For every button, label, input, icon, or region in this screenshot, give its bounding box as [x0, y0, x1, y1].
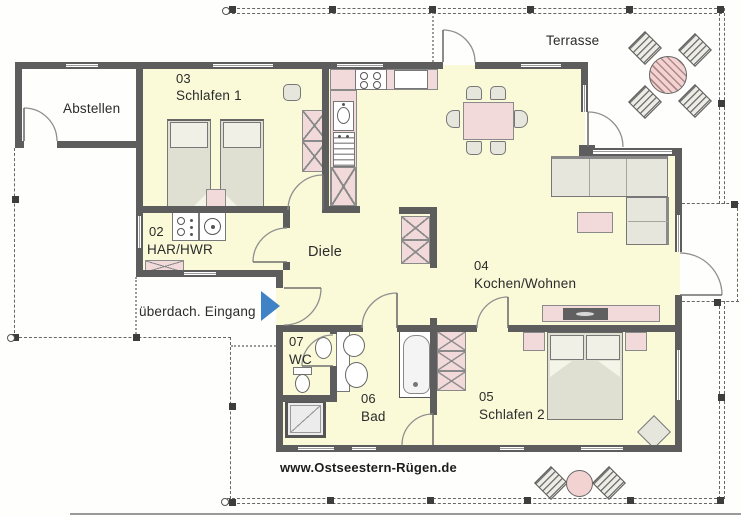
bad-sink-icon — [343, 334, 365, 357]
shower-icon — [285, 400, 326, 438]
boundary-post — [229, 403, 236, 410]
dining-chair — [490, 86, 506, 100]
boundary-post — [717, 6, 724, 13]
wall-bad-north-b — [397, 325, 477, 332]
knob — [346, 135, 349, 138]
wall-abstellen-west — [15, 62, 22, 148]
window-har-west — [136, 216, 143, 248]
boundary-post — [133, 334, 140, 341]
nightstand — [523, 332, 545, 351]
wall-wc-south — [283, 395, 337, 402]
wall-schlafen1-south — [136, 206, 288, 213]
laundry-sink-icon — [172, 212, 199, 241]
boundary-post — [527, 6, 534, 13]
door-arc-abstellen — [24, 108, 57, 141]
shower-tray — [290, 405, 321, 433]
wc-sink-icon — [315, 337, 332, 359]
window-bad-south2 — [352, 445, 376, 452]
boundary-post — [229, 499, 236, 506]
wall-har-east-a — [283, 206, 290, 228]
label-diele: Diele — [308, 244, 342, 260]
boundary-post — [427, 497, 434, 504]
diele-closet — [401, 240, 430, 264]
boundary-entry-vertical — [230, 337, 231, 499]
wall-schlafen1-kitchen — [322, 62, 329, 213]
entry-arrow-icon — [261, 291, 280, 321]
stool — [283, 84, 301, 101]
boundary-post — [329, 6, 336, 13]
dotted-entry-connector — [231, 345, 276, 347]
pillow — [550, 335, 584, 360]
nightstand — [625, 332, 647, 351]
window-har-south — [184, 270, 216, 277]
stove-icon — [355, 69, 387, 90]
door-arc-terrace-north — [443, 30, 475, 62]
room-number-wc: 07 — [289, 334, 304, 349]
pillow — [586, 335, 620, 360]
kitchen-cupboard — [331, 167, 356, 206]
website-label: www.Ostseestern-Rügen.de — [280, 460, 457, 475]
wall-schlafen2-north — [508, 325, 675, 332]
washer-center — [211, 225, 215, 229]
door-arc-terrace-east — [680, 253, 722, 295]
room-name-schlafen2: Schlafen 2 — [479, 407, 545, 422]
sink-basin — [337, 107, 350, 124]
room-number-schlafen1: 03 — [176, 71, 191, 86]
wall-entry-west-a — [276, 270, 283, 288]
boundary-post — [12, 196, 19, 203]
boundary-post — [717, 497, 724, 504]
window-kitchen — [337, 62, 383, 69]
pillow — [170, 122, 208, 148]
burner-icon — [373, 81, 381, 89]
washer-icon — [199, 212, 226, 241]
sofa-seam — [589, 159, 590, 196]
kitchen-worktop — [394, 70, 428, 89]
knob — [338, 135, 341, 138]
room-name-wc: WC — [289, 352, 312, 367]
wall-bad-east — [430, 318, 437, 415]
boundary-top — [227, 8, 722, 14]
boundary-marker — [221, 498, 229, 506]
kitchen-sink-icon — [333, 101, 354, 131]
label-abstellen: Abstellen — [63, 101, 120, 116]
basin — [177, 228, 185, 236]
boundary-post — [731, 201, 738, 208]
room-name-schlafen1: Schlafen 1 — [176, 88, 242, 103]
boundary-post — [327, 497, 334, 504]
drain — [413, 382, 418, 387]
room-name-bad: Bad — [361, 409, 386, 424]
wall-har-east-b — [283, 262, 290, 270]
terrace-table — [649, 56, 687, 94]
burner-icon — [360, 81, 368, 89]
boundary-entry-left — [14, 148, 15, 338]
knob — [190, 226, 193, 229]
wardrobe-schlafen2 — [437, 351, 466, 371]
knob — [190, 219, 193, 222]
room-number-har: 02 — [149, 224, 164, 239]
terrace-side-table — [566, 470, 593, 497]
boundary-entry-mid — [14, 337, 231, 338]
boundary-post — [229, 6, 236, 13]
coffee-table — [577, 212, 613, 233]
window-schlafen2-south-a — [500, 445, 524, 452]
boundary-jog-bottom — [682, 301, 739, 302]
boundary-post — [718, 100, 725, 107]
wall-bad-north-a — [283, 325, 363, 332]
blanket-fold — [598, 361, 620, 377]
window-notch-south — [593, 148, 672, 156]
terrace-chair — [534, 466, 568, 500]
blanket-fold — [550, 361, 572, 377]
diele-closet — [401, 216, 430, 240]
floor-plan: Terrasse Abstellen 03 Schlafen 1 02 HAR/… — [0, 0, 741, 517]
boundary-marker — [222, 7, 230, 15]
window-bad-south — [298, 445, 334, 452]
window-notch-west — [581, 85, 588, 112]
burner-icon — [373, 72, 381, 80]
wall-entry-west-b — [276, 325, 283, 452]
room-name-kochen: Kochen/Wohnen — [474, 276, 576, 291]
boundary-post — [718, 394, 725, 401]
sofa-seam — [626, 159, 627, 196]
sofa-horizontal — [551, 156, 668, 197]
room-name-har: HAR/HWR — [147, 242, 213, 257]
wardrobe-schlafen2 — [437, 331, 466, 351]
room-number-schlafen2: 05 — [479, 389, 494, 404]
knob — [190, 233, 193, 236]
sofa-seam — [628, 221, 668, 222]
dining-chair — [466, 141, 482, 155]
terrace-chair — [592, 466, 626, 500]
toilet-icon — [295, 374, 310, 393]
dining-chair — [446, 110, 460, 128]
dishwasher-icon — [333, 132, 355, 167]
dining-table — [463, 102, 514, 140]
dining-chair — [466, 86, 482, 100]
boundary-marker — [7, 334, 15, 342]
wall-abstellen-south-b — [57, 141, 142, 148]
boundary-post — [429, 6, 436, 13]
wall-kitchen-stub — [322, 206, 360, 213]
boundary-post — [626, 6, 633, 13]
window-schlafen1 — [213, 62, 273, 69]
door-arc-terrace-notch — [588, 112, 623, 147]
tap-icon — [342, 103, 345, 106]
dotted-terrace-edge — [432, 12, 434, 62]
wall-wc-east-a — [330, 325, 337, 334]
dining-chair — [514, 110, 528, 128]
window-abstellen — [66, 62, 98, 69]
window-east-lower — [675, 350, 682, 400]
tv-icon — [563, 308, 608, 320]
label-eingang: überdach. Eingang — [139, 304, 256, 319]
pillow — [223, 122, 261, 148]
nightstand — [206, 189, 226, 207]
window-living-north — [521, 62, 561, 69]
wall-abstellen-south-a — [15, 141, 24, 148]
terrace-chair — [678, 33, 712, 67]
room-number-bad: 06 — [361, 391, 376, 406]
label-terrasse: Terrasse — [546, 33, 599, 48]
wardrobe-schlafen2 — [437, 371, 466, 391]
bad-sink-icon — [345, 362, 368, 388]
bathtub-icon — [399, 330, 433, 398]
window-schlafen2-south-b — [581, 445, 623, 452]
wall-closet-right — [430, 207, 437, 268]
terrace-chair — [678, 84, 712, 118]
basin — [177, 217, 185, 225]
boundary-post — [714, 299, 721, 306]
burner-icon — [360, 72, 368, 80]
window-east-upper — [675, 215, 682, 252]
dining-chair — [490, 141, 506, 155]
dotted-entry-edge — [135, 277, 137, 337]
tv-lens — [575, 311, 595, 317]
room-number-kochen: 04 — [474, 258, 489, 273]
boundary-post — [627, 497, 634, 504]
boundary-bottom — [227, 498, 722, 504]
boundary-jog-right — [737, 203, 738, 302]
scan-line — [70, 513, 741, 515]
boundary-post — [524, 497, 531, 504]
